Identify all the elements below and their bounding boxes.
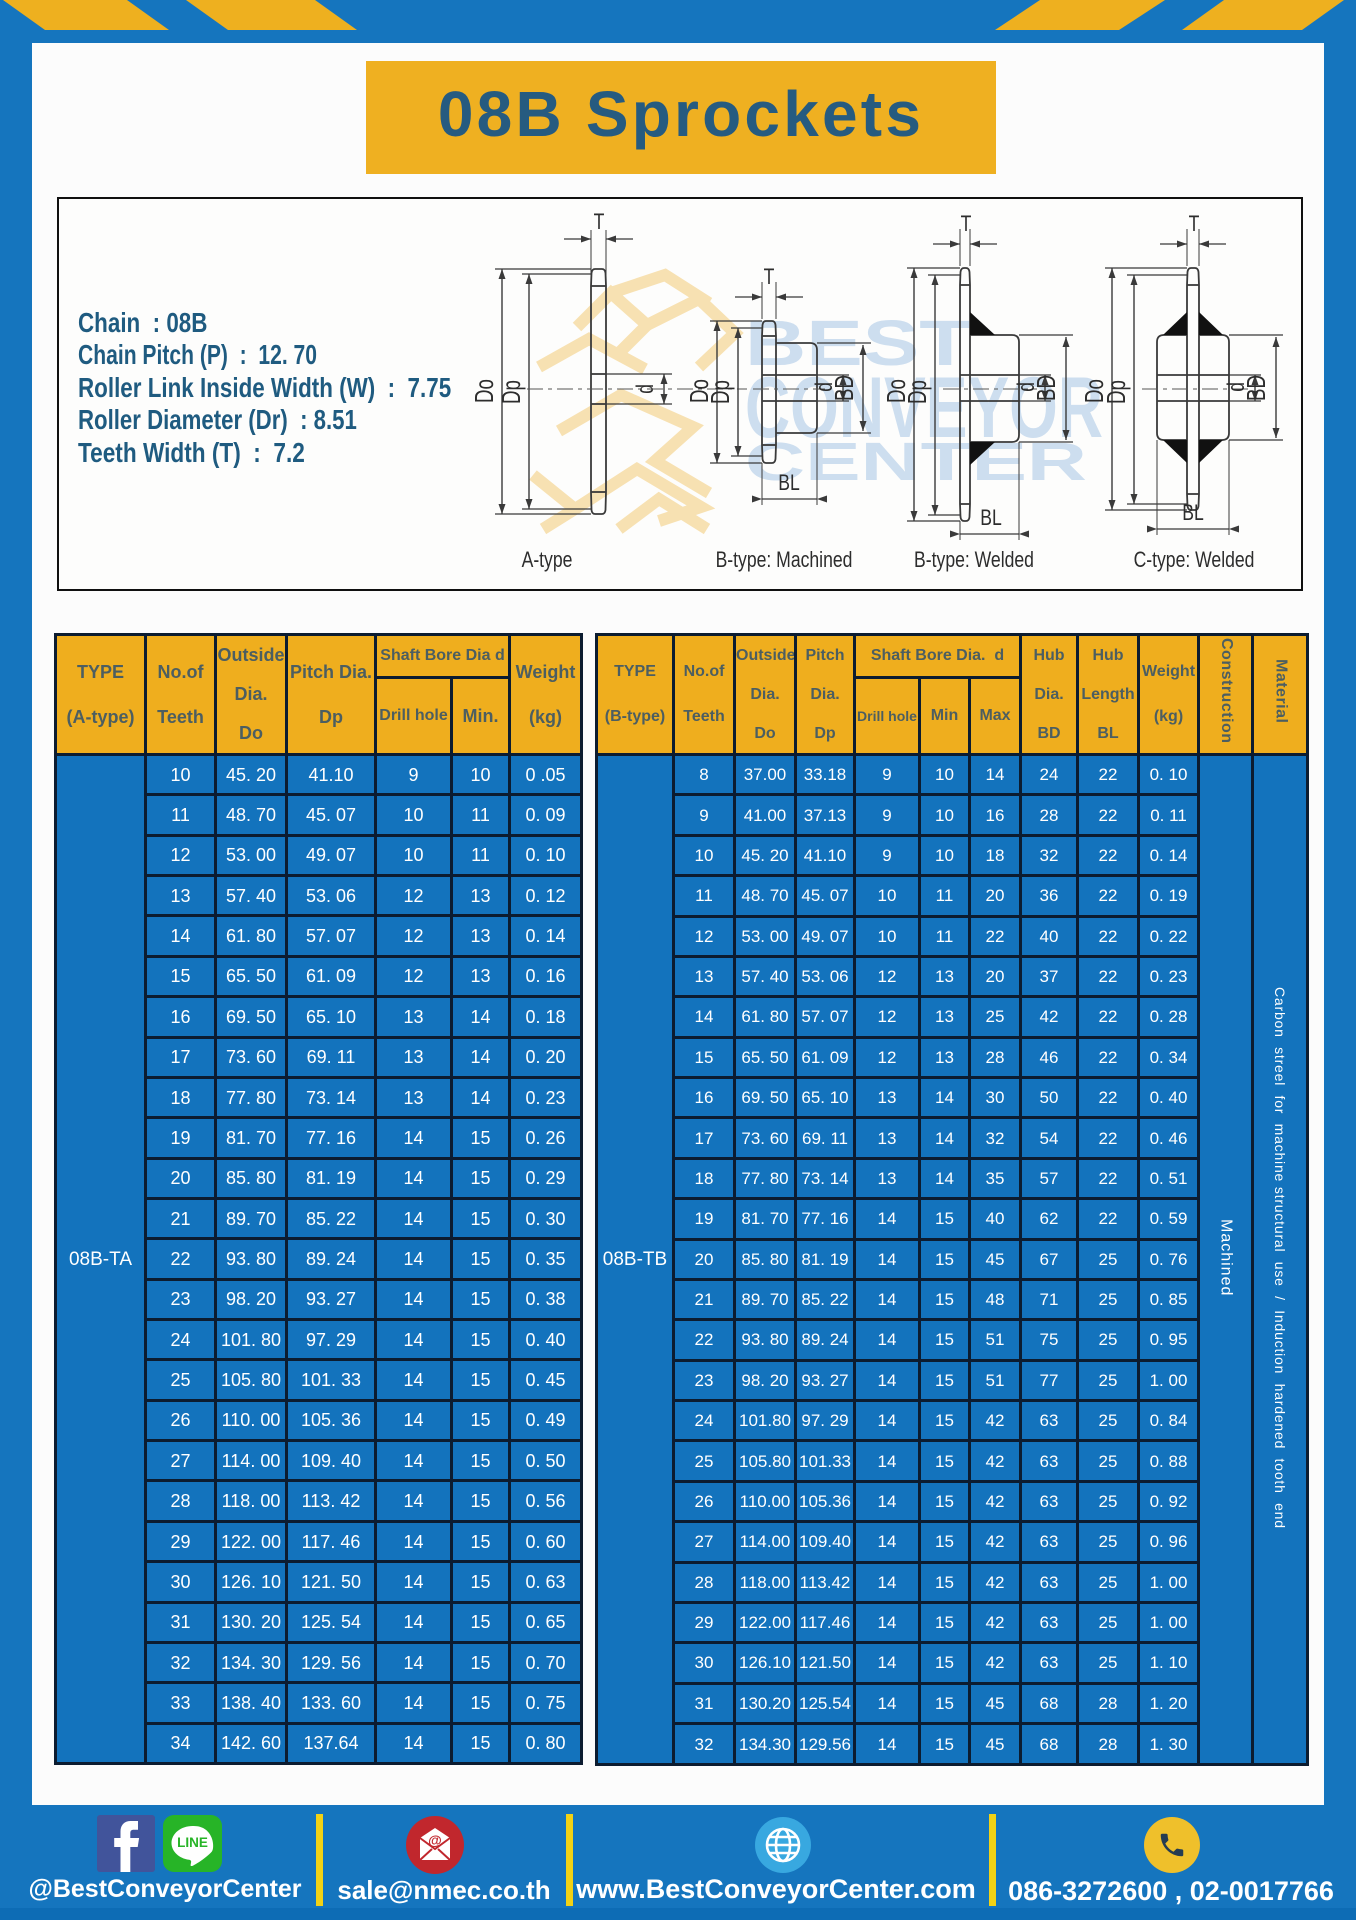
svg-text:T: T [961, 212, 972, 236]
svg-text:LINE: LINE [177, 1835, 208, 1850]
svg-text:T: T [764, 265, 775, 289]
svg-text:B-type: Machined: B-type: Machined [716, 548, 853, 572]
svg-text:@: @ [428, 1832, 442, 1848]
svg-text:BL: BL [980, 506, 1002, 530]
svg-text:BD: BD [1241, 375, 1271, 401]
svg-text:Dp: Dp [1101, 380, 1131, 404]
svg-text:BD: BD [1031, 375, 1061, 401]
svg-text:Dp: Dp [496, 380, 526, 404]
svg-text:Dp: Dp [705, 380, 735, 404]
svg-text:BL: BL [778, 471, 800, 495]
svg-text:Dp: Dp [902, 380, 932, 404]
svg-text:C-type: Welded: C-type: Welded [1134, 548, 1255, 572]
svg-text:Do: Do [469, 379, 499, 403]
svg-text:BL: BL [1182, 501, 1204, 525]
svg-text:B-type: Welded: B-type: Welded [914, 548, 1034, 572]
svg-text:A-type: A-type [522, 548, 573, 572]
svg-text:T: T [1189, 212, 1200, 236]
svg-text:BD: BD [829, 375, 859, 401]
svg-text:T: T [594, 210, 605, 234]
